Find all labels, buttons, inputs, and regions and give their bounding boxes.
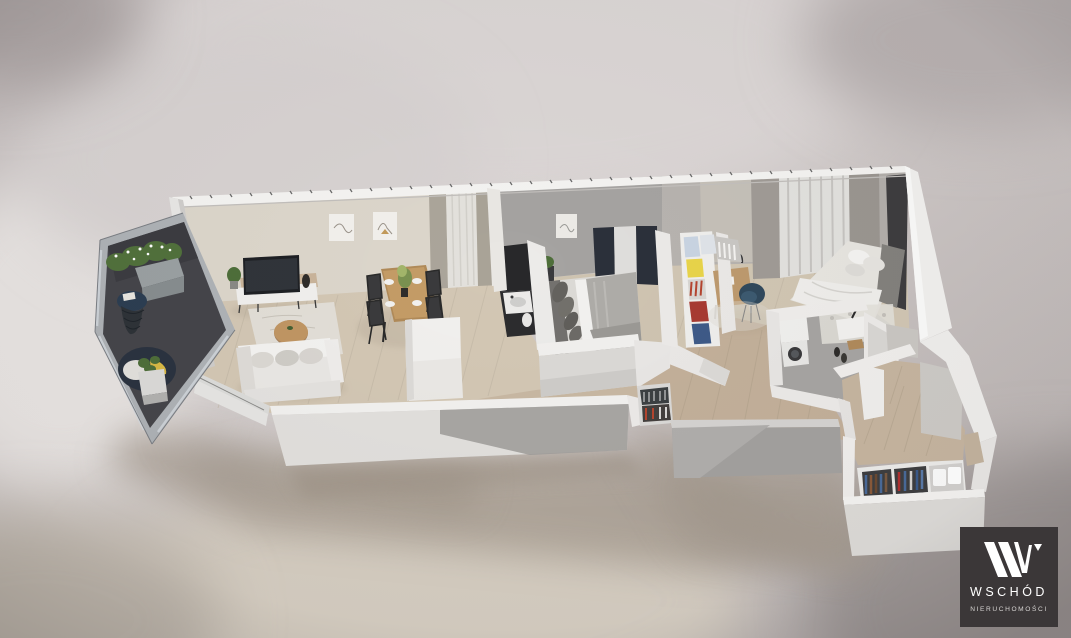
svg-text:WSCHÓD: WSCHÓD	[970, 584, 1048, 599]
svg-text:NIERUCHOMOŚCI: NIERUCHOMOŚCI	[970, 604, 1048, 613]
